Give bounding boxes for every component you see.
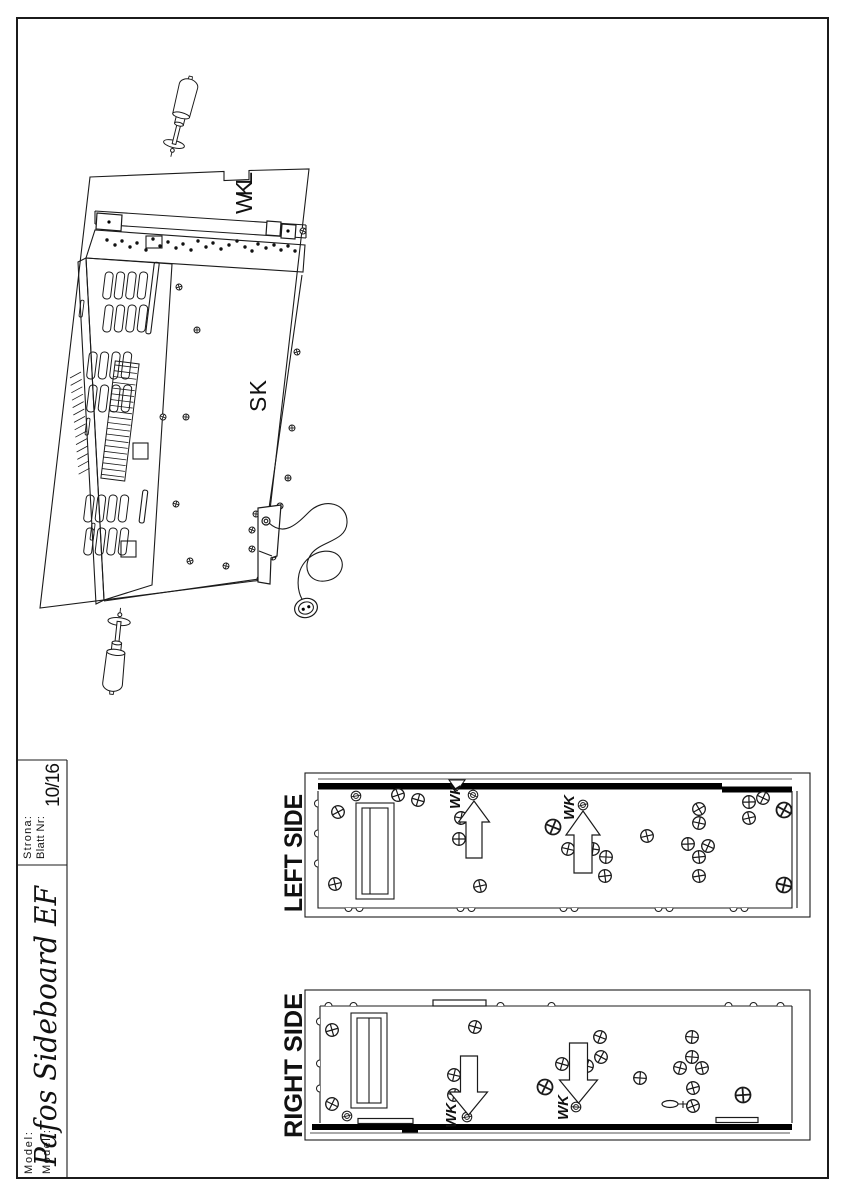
hole-dot xyxy=(293,249,296,252)
page-border xyxy=(17,18,828,1178)
screw-icon xyxy=(293,348,300,355)
screw-icon xyxy=(743,796,756,809)
hole-dot xyxy=(286,244,289,247)
screw-icon xyxy=(599,850,612,863)
hole-dot xyxy=(250,249,253,252)
wk-arrow-down-2 xyxy=(560,1043,598,1103)
screw-icon xyxy=(692,816,707,831)
screw-icon xyxy=(774,800,794,820)
hole-dot xyxy=(243,245,246,248)
vent-slot xyxy=(95,495,106,523)
hole-dot xyxy=(158,244,161,247)
power-supply-box xyxy=(258,505,281,584)
vent-slot xyxy=(137,272,148,300)
screw-icon xyxy=(741,810,756,825)
screw-icon xyxy=(685,1050,699,1064)
vent-slot xyxy=(114,272,125,300)
screw-icon xyxy=(775,876,793,894)
hole-dot xyxy=(256,242,259,245)
screw-icon xyxy=(692,850,706,864)
screw-icon xyxy=(453,833,466,846)
screw-icon xyxy=(735,1087,751,1103)
screw-icon xyxy=(467,789,480,802)
hole-dot xyxy=(144,248,147,251)
right-side-view: WK WK RIGHT SIDE xyxy=(280,990,810,1140)
hole-dot xyxy=(181,242,184,245)
screw-icon xyxy=(672,1060,687,1075)
screwdriver-bottom-icon xyxy=(100,607,131,696)
wk-label-1: WK xyxy=(447,783,464,809)
dowel-marks xyxy=(315,800,749,912)
screw-icon xyxy=(535,1077,555,1097)
hole-dot xyxy=(235,239,238,242)
screw-icon xyxy=(172,500,179,507)
wk-label-1: WK xyxy=(443,1102,460,1128)
screw-icon xyxy=(329,803,346,820)
vent-slot xyxy=(102,272,113,300)
page-number-label-de: Blatt Nr: xyxy=(35,816,47,859)
page-drawing: Strona: Blatt Nr: 10/16 Model: Modell: P… xyxy=(0,0,849,1200)
right-screws xyxy=(324,1019,751,1122)
screw-icon xyxy=(639,828,654,843)
screw-icon xyxy=(560,841,575,856)
hole-dot xyxy=(279,248,282,251)
screw-icon xyxy=(571,1102,581,1112)
screw-icon xyxy=(248,545,256,553)
screw-icon xyxy=(186,557,193,564)
vent-slot xyxy=(118,495,129,523)
power-plug-icon xyxy=(292,596,319,620)
screw-icon xyxy=(159,413,167,421)
assembly-view: WKL SK xyxy=(40,74,347,696)
right-edge-band xyxy=(312,1124,792,1130)
screw-icon xyxy=(543,817,563,837)
screw-icon xyxy=(324,1096,341,1113)
screw-icon xyxy=(194,327,200,333)
side-thickness xyxy=(78,258,104,604)
vent-slot xyxy=(121,385,132,413)
hole-dot xyxy=(189,248,192,251)
screw-icon xyxy=(685,1080,700,1095)
label-sk: SK xyxy=(245,379,271,412)
screw-icon xyxy=(467,1019,483,1035)
left-edge-band xyxy=(318,783,722,790)
screw-icon xyxy=(248,526,256,534)
screw-icon xyxy=(285,475,291,481)
hole-dot xyxy=(227,243,230,246)
vent-slot xyxy=(98,385,109,413)
hole-dot xyxy=(113,243,116,246)
right-side-title: RIGHT SIDE xyxy=(280,993,308,1138)
hole-dot xyxy=(166,240,169,243)
screw-icon xyxy=(685,1030,699,1044)
vent-slot xyxy=(83,495,94,523)
hole-dot xyxy=(211,241,214,244)
screw-icon xyxy=(289,425,295,431)
heater-fins xyxy=(101,361,139,481)
vent-slot xyxy=(86,385,97,413)
hole-dot xyxy=(120,239,123,242)
page-number-value: 10/16 xyxy=(43,763,64,807)
hole-dot xyxy=(128,245,131,248)
hole-dot xyxy=(174,246,177,249)
page-number-label-pl: Strona: xyxy=(22,816,34,859)
screw-icon xyxy=(341,1110,353,1122)
left-frame xyxy=(305,773,810,917)
wk-label-2: WK xyxy=(561,794,578,820)
screw-icon xyxy=(577,799,589,811)
vent-slot xyxy=(125,305,136,333)
screw-icon xyxy=(690,800,707,817)
vent-slot xyxy=(106,495,117,523)
screwdriver-top-icon xyxy=(160,74,201,160)
screw-icon xyxy=(350,790,361,801)
vent-slot xyxy=(98,352,109,380)
fastener-holes xyxy=(105,237,296,252)
vent-slot xyxy=(125,272,136,300)
screw-icon xyxy=(446,1067,461,1082)
hole-dot xyxy=(151,237,154,240)
hole-dot xyxy=(105,238,108,241)
screw-icon xyxy=(598,869,612,883)
instruction-manual-page: Strona: Blatt Nr: 10/16 Model: Modell: P… xyxy=(0,0,849,1200)
screw-icon xyxy=(410,792,426,808)
screw-icon xyxy=(554,1056,570,1072)
screw-icon xyxy=(685,1098,701,1114)
left-panel-outline xyxy=(318,791,797,908)
screw-icon xyxy=(633,1071,646,1084)
hole-dot xyxy=(135,241,138,244)
vent-face xyxy=(86,258,172,600)
screw-icon xyxy=(695,1061,710,1076)
left-side-view: WK WK LEFT SIDE xyxy=(280,773,810,917)
label-wkl: WKL xyxy=(231,172,257,214)
vent-slot xyxy=(102,305,113,333)
screw-icon xyxy=(592,1029,608,1045)
wkl-strip xyxy=(95,211,306,239)
model-name: Pafos Sideboard EF xyxy=(29,885,64,1167)
screw-icon xyxy=(592,1048,609,1065)
hole-dot xyxy=(272,243,275,246)
wk-label-2: WK xyxy=(555,1094,572,1120)
vent-slot xyxy=(114,305,125,333)
hole-dot xyxy=(264,246,267,249)
screw-icon xyxy=(681,837,694,850)
screw-icon xyxy=(692,869,706,883)
cam-lock-icon xyxy=(662,1101,688,1109)
hole-dot xyxy=(196,239,199,242)
screw-icon xyxy=(183,414,189,420)
hole-dot xyxy=(219,247,222,250)
left-side-title: LEFT SIDE xyxy=(280,794,308,912)
screw-icon xyxy=(473,879,488,894)
title-block: Strona: Blatt Nr: 10/16 Model: Modell: P… xyxy=(18,760,67,1178)
screw-icon xyxy=(175,283,182,290)
hole-dot xyxy=(204,245,207,248)
screw-icon xyxy=(223,563,230,570)
screw-icon xyxy=(327,876,342,891)
screw-icon xyxy=(324,1022,340,1038)
power-cable xyxy=(269,504,347,603)
vent-slot xyxy=(106,528,117,556)
top-tab xyxy=(433,1000,486,1006)
